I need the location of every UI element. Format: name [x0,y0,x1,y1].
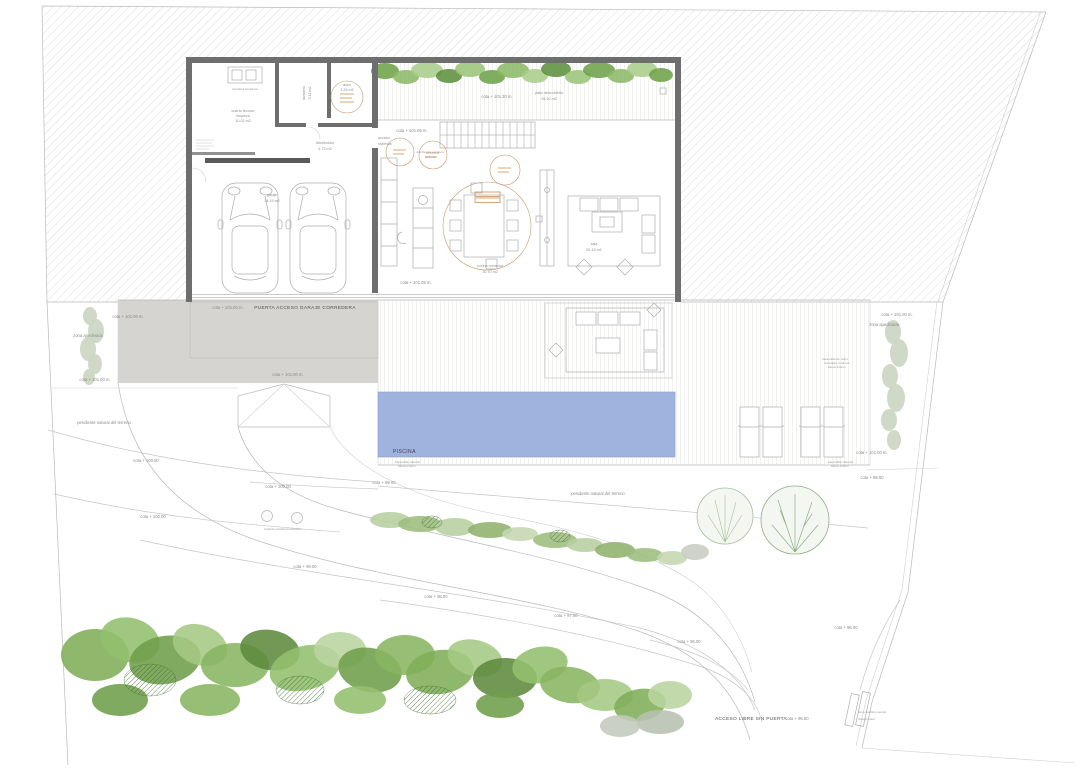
outline-trees [697,486,829,554]
label-piscina: PISCINA [393,449,416,455]
label-cota-99-00b: cota + 99.00 [293,564,317,569]
label-cota-100-00b: cota + 100.00 [265,484,291,489]
label-cota-right-mid: cota + 101.00 m. [856,450,887,455]
living-room [568,196,660,275]
terrace-deck [378,300,870,465]
label-cota-96-00a: cota + 96.00 [677,639,701,644]
label-cota-101-05: cota + 101.05 m. [396,128,427,133]
label-cuarto-tecnico: cuarto técnico [232,109,255,113]
mid-vegetation-band [370,512,709,565]
dining-area [443,182,531,270]
forest-canopy [61,611,692,737]
postal-intercom-zone [845,692,871,727]
label-casillero: zona casillero postal [858,710,886,714]
label-cota-forecourt: cota + 101.00 m. [212,305,243,310]
garage-car-2 [286,183,350,293]
label-aseo: aseo [343,83,351,87]
label-distribuidor: distribuidor [316,141,335,145]
label-garaje: garaje [267,193,277,197]
label-patio: patio descubierto [535,91,563,95]
label-acceso-libre: ACCESO LIBRE SIN PUERTA [715,716,788,722]
label-cota-95-50: cota + 95.50 [785,716,809,721]
label-pendiente-left: pendiente natural del terreno [77,420,131,425]
label-bolardo: bolardo retráctil automático [264,527,302,531]
label-cota-left-top: cota + 101.00 m. [112,314,143,319]
label-sala: sala [591,242,599,246]
svg-text:10.02 m2: 10.02 m2 [235,119,250,123]
label-cota-forecourt2: cota + 101.00 m. [272,372,303,377]
label-cota-101-05b: cota + 101.05 m. [400,280,431,285]
label-cota-98-50: cota + 98.50 [860,475,884,480]
label-cota-right-top: cota + 101.00 m. [881,312,912,317]
label-cota-98-00: cota + 98.00 [424,594,448,599]
label-zona-ajardinada-right: zona ajardinada [869,322,899,327]
garage [218,183,350,293]
divider-unit [536,170,554,266]
bollard [292,513,303,524]
svg-text:11.9 m2: 11.9 m2 [425,155,436,159]
svg-text:altura 110cm: altura 110cm [398,464,416,468]
label-zona-ajardinada-left: zona ajardinada [73,333,103,338]
svg-text:vivienda: vivienda [378,142,392,146]
carport-gable [238,384,330,427]
label-lavadora: lavadora secadora [232,87,258,91]
kitchen-faucet [398,232,407,244]
site-plan-drawing: lavadora secadora cuarto técnico limpiez… [0,0,1087,768]
svg-text:34.19 m2: 34.19 m2 [264,199,279,203]
svg-text:videoportero: videoportero [858,717,875,721]
svg-text:52.15 m2: 52.15 m2 [586,248,601,252]
label-cota-99-00a: cota + 99.00 [372,480,396,485]
pool [378,392,675,457]
house-plan [186,57,681,302]
garage-forecourt [118,300,378,383]
svg-text:3.11 m2: 3.11 m2 [308,86,312,99]
kitchen [381,158,433,268]
label-distribuidor-escalera: distribuidor escalera [416,150,444,154]
label-pendiente-mid: pendiente natural del terreno [571,491,625,496]
glass-facade [192,295,675,298]
staircase [440,122,535,148]
label-lavadero: lavadero [302,86,306,100]
label-cota-100-50: cota + 100.50 [133,458,159,463]
svg-text:4.73 m2: 4.73 m2 [318,147,331,151]
label-cocina: cocina comedor [477,264,504,268]
label-cota-97-00: cota + 97.00 [554,613,578,618]
label-cota-left-bot: cota + 101.00 m. [79,377,110,382]
svg-text:altura 110cm: altura 110cm [828,365,846,369]
svg-text:altura 110cm: altura 110cm [831,464,849,468]
label-cota-100-00a: cota + 100.00 [140,514,166,519]
svg-text:3.26 m2: 3.26 m2 [340,88,353,92]
svg-text:26.10 m2: 26.10 m2 [541,97,556,101]
label-puerta-garaje: PUERTA ACCESO GARAJE CORREDERA [254,305,356,311]
label-cota-101-30: cota + 101.30 m. [481,94,512,99]
svg-text:limpieza: limpieza [236,114,250,118]
label-acceso-vivienda: acceso [378,136,390,140]
label-cota-96-00b: cota + 96.00 [834,625,858,630]
bollard [262,511,273,522]
svg-text:30.70 m2: 30.70 m2 [482,270,497,274]
